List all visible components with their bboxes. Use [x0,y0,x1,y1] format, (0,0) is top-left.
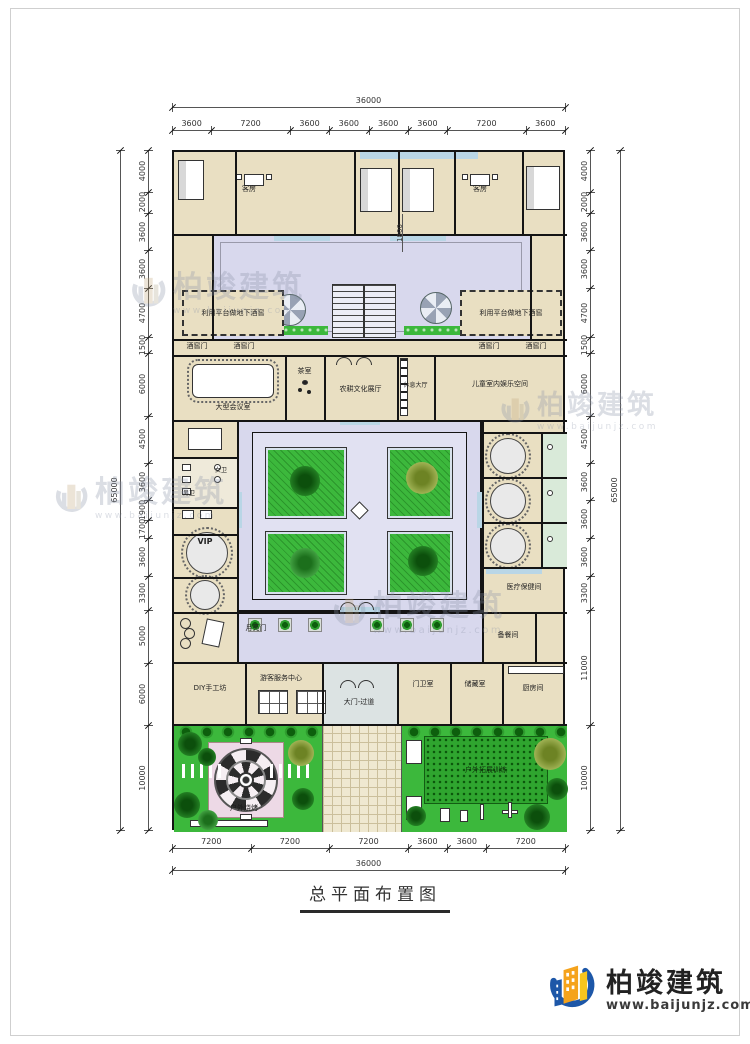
tree [546,778,568,800]
bed [526,166,560,210]
wall [502,662,504,724]
dimension-top-total: 36000 [172,107,565,108]
room-label-kids: 儿童室内娱乐空间 [440,380,560,388]
wall [237,612,239,662]
dimension-bottom-total: 36000 [172,870,565,871]
room-label-guest: 客房 [465,185,495,193]
room-label-cellar: 利用平台做地下酒窖 [480,309,543,317]
sink [214,476,221,483]
wall [237,420,239,612]
office-desks [258,690,288,714]
room-label-vip: VIP [190,537,220,546]
tree [408,546,438,576]
wall [322,662,324,724]
dim-label: 7200 [347,837,391,847]
door-arc [336,357,352,365]
sink [547,490,553,496]
sofa [492,174,498,180]
wall [434,355,436,420]
dim-label: 65000 [610,470,620,510]
wall [482,432,567,434]
dim-label: 4500 [580,419,590,459]
dimension-bottom-segments: 720072007200360036007200 [172,848,565,849]
kitchen-counter [508,666,564,674]
dimension-right-total: 65000 [620,150,621,830]
room-label-kitchen: 厨房间 [510,684,556,692]
wall [454,152,456,234]
paving-rosette [420,292,452,324]
planter [370,618,384,632]
room-label-guest: 客房 [234,185,264,193]
dim-label: 3600 [288,119,332,129]
room-label-cellar: 利用平台做地下酒窖 [202,309,265,317]
dim-label: 3600 [445,837,489,847]
dim-label: 7200 [464,119,508,129]
window-strip [486,569,542,574]
wall [541,432,543,567]
brand-logo: 柏竣建筑 www.baijunjz.com [540,958,750,1024]
wall [174,507,237,509]
fitness-equipment [460,810,468,822]
dim-label: 3600 [580,212,590,252]
dim-label: 7200 [504,837,548,847]
wall [174,577,237,579]
dim-label: 3600 [138,212,148,252]
fixture [182,510,194,519]
dim-label: 4500 [138,419,148,459]
training-field: 户外拓展训练 [424,736,548,804]
dim-label: 3600 [580,499,590,539]
dim-label: 10000 [580,758,590,798]
dim-label: 5000 [138,616,148,656]
wall [354,152,356,234]
wine-cellar-right: 利用平台做地下酒窖 [460,290,562,336]
bed [178,160,204,200]
tree [198,748,216,766]
dim-label: 3300 [580,573,590,613]
dimension-left-segments: 4000200036003600470015006000450036001900… [148,150,149,830]
wall [285,355,287,420]
dim-label: 3600 [405,837,449,847]
dim-label: 1500 [580,325,590,365]
round-table [490,438,526,474]
tree [198,810,218,830]
dim-label: 3600 [580,462,590,502]
dim-label: 6000 [138,674,148,714]
wine-cellar-left: 利用平台做地下酒窖 [182,290,284,336]
dim-label: 3600 [405,119,449,129]
dim-label: 36000 [347,859,391,869]
dimension-left-total: 65000 [120,150,121,830]
dim-label: 3600 [366,119,410,129]
wall [174,724,567,726]
planter [278,618,292,632]
room-label-exhibit: 农耕文化展厅 [325,385,396,393]
tree [524,804,550,830]
planter [430,618,444,632]
easel [201,618,224,647]
wall [535,612,537,662]
balcony-strip [360,152,478,159]
wall [174,355,567,357]
tree [534,738,566,770]
room-label-diy: DIY手工坊 [182,684,238,692]
dim-label: 3600 [523,119,567,129]
wall [482,567,567,569]
inner-dim-label: 1800 [396,218,406,248]
wall [482,420,484,612]
drawing-title: 总平面布置图 [300,880,450,913]
toilet [182,476,191,483]
planter-box [406,740,422,764]
round-table [190,580,220,610]
room-label-cellar-door: 酒窖门 [179,342,215,350]
wall [174,612,567,614]
tree [406,806,426,826]
wall [482,522,567,524]
wall [482,477,567,479]
dim-label: 65000 [110,470,120,510]
wall [530,234,532,339]
door-arc [356,357,372,365]
dim-label: 3600 [327,119,371,129]
window-strip [274,236,330,241]
tea-stool [298,388,302,392]
room-label-guard: 门卫室 [402,680,444,688]
dim-label: 3600 [138,249,148,289]
sofa [266,174,272,180]
dim-label: 11000 [580,648,590,688]
bed [402,168,434,212]
dim-label: 3600 [170,119,214,129]
dim-label: 6000 [138,364,148,404]
tree [290,548,320,578]
wall [174,457,237,459]
fitness-equipment [440,808,450,822]
sink [547,444,553,450]
drawing-sheet: 利用平台做地下酒窖 利用平台做地下酒窖 [0,0,750,1044]
wall [397,662,399,724]
tea-table [302,380,308,385]
fitness-equipment [508,802,512,818]
wall [522,152,524,234]
room-label-cellar-door: 酒窖门 [226,342,262,350]
round-table [490,528,526,564]
dim-label: 7200 [189,837,233,847]
fence-posts [182,764,226,778]
fence-posts [270,764,314,778]
room-label-lounge: 休息大厅 [398,383,433,390]
fitness-equipment [480,804,484,820]
tree [292,788,314,810]
room-label-storage: 储藏室 [454,680,496,688]
dim-label: 1500 [138,325,148,365]
conference-table [192,364,274,398]
wall [212,234,214,339]
planter [400,618,414,632]
round-table [490,483,526,519]
tree [406,462,438,494]
bed [360,168,392,212]
dim-label: 3600 [138,537,148,577]
sink [547,536,553,542]
dim-label: 7200 [268,837,312,847]
moon-gate-corridor [237,612,482,662]
dim-label: 3300 [138,573,148,613]
room-label-wc-women: 女卫 [210,468,232,475]
brand-logo-icon [540,958,598,1024]
tree [288,740,314,766]
dim-label: 10000 [138,758,148,798]
room-label-conference: 大型会议室 [192,403,274,411]
brand-name: 柏竣建筑 [606,969,750,999]
tea-stool [307,390,311,394]
tree [290,466,320,496]
wall [245,662,247,724]
room-label-gate: 大门-过道 [326,698,392,706]
decor-circle [180,638,191,649]
wall [174,662,567,664]
sofa [462,174,468,180]
planter [308,618,322,632]
room-label-cellar-door: 酒窖门 [471,342,507,350]
brand-url: www.baijunjz.com [606,998,750,1013]
room-label-wc-men: 男卫 [178,491,200,498]
paved-walk [322,724,402,832]
page: { "title": { "text": "总平面布置图" }, "logo":… [0,0,750,1044]
dimension-right-segments: 4000200036003600470015006000450036003600… [590,150,591,830]
dining-bathrooms [541,432,567,567]
floor-plan: 利用平台做地下酒窖 利用平台做地下酒窖 [172,150,565,830]
room-label-cellar-door: 酒窖门 [518,342,554,350]
room-label-bbq: 户外烧烤 [218,804,270,812]
wall [174,234,567,236]
bbq-center [238,772,254,788]
table [188,428,222,450]
stair-rail [363,284,365,338]
dimension-top-segments: 36007200360036003600360072003600 [172,130,565,131]
wall [174,339,567,341]
gate-passage [322,662,397,724]
dim-label: 3600 [580,537,590,577]
room-label-visitor: 游客服务中心 [248,674,314,682]
room-label-tea: 茶室 [286,367,323,375]
room-label-prep: 备餐间 [484,631,532,639]
room-label-training: 户外拓展训练 [465,766,507,774]
toilet [182,464,191,471]
tree [174,792,200,818]
wall [450,662,452,724]
room-label-medical: 医疗保健间 [486,583,562,591]
fixture [200,510,212,519]
wall [174,534,237,536]
dim-label: 7200 [229,119,273,129]
dim-label: 6000 [580,364,590,404]
dim-label: 36000 [347,96,391,106]
dim-label: 3600 [580,249,590,289]
terrace-step [240,738,252,744]
room-label-moon-gate: 月亮门 [238,624,274,632]
wall [174,420,567,422]
